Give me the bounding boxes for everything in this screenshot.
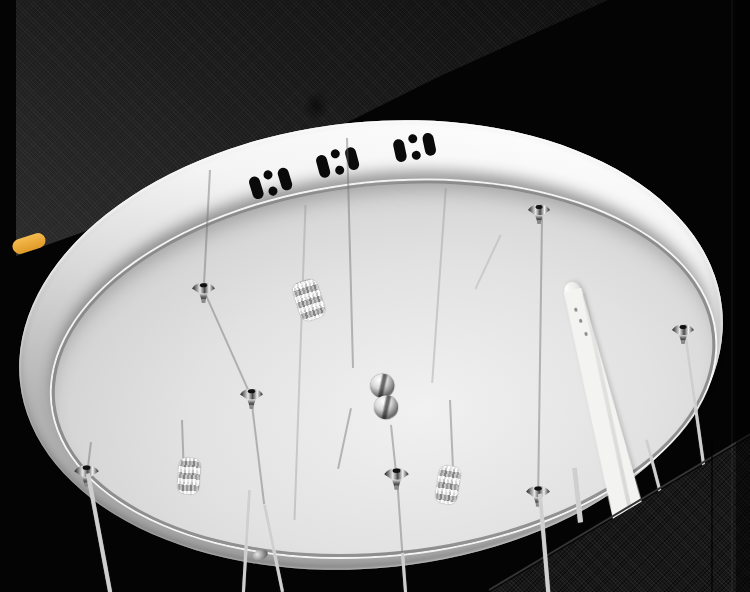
vent-dot xyxy=(262,169,273,180)
mesh-seam xyxy=(711,442,713,592)
cable-holder xyxy=(670,322,696,348)
vent-dot xyxy=(411,150,422,161)
cable-holder xyxy=(238,386,265,413)
crystal-bead xyxy=(177,457,201,494)
product-photo xyxy=(0,0,750,592)
cable-holder xyxy=(526,202,552,228)
vent-dot xyxy=(330,148,341,159)
chrome-knob xyxy=(363,372,404,425)
knob-ball xyxy=(373,394,399,420)
backdrop-right-seam xyxy=(731,0,733,592)
cable-holder xyxy=(190,280,217,307)
ceiling-hook-shadow xyxy=(298,84,334,128)
cable-holder xyxy=(382,465,411,494)
vent-dot xyxy=(407,133,418,144)
backdrop-right-strip xyxy=(736,0,750,592)
